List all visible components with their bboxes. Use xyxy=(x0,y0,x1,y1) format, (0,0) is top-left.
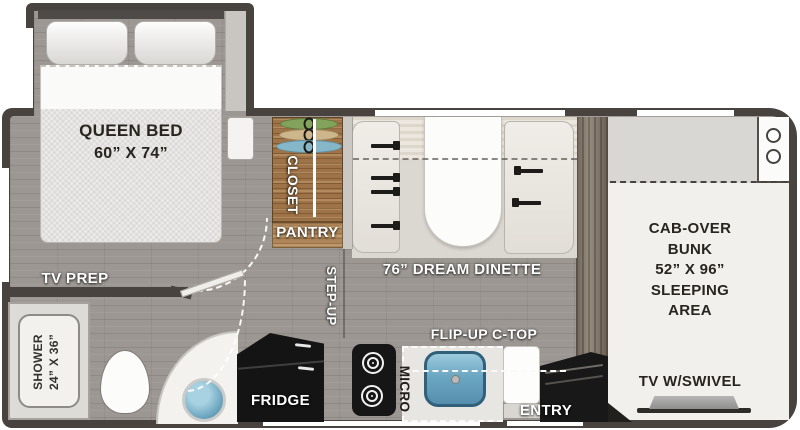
window-slideout-left xyxy=(26,28,33,108)
tv-swivel-label: TV W/SWIVEL xyxy=(617,373,763,390)
cupholder-icon xyxy=(766,149,781,164)
stove-burner-icon xyxy=(362,352,384,374)
seat-belt-icon xyxy=(514,201,541,205)
nightstand xyxy=(227,117,254,160)
fridge-label: FRIDGE xyxy=(237,392,324,409)
cab-over-bunk-label: CAB-OVER BUNK 52” X 96” SLEEPING AREA xyxy=(617,219,763,322)
seat-belt-icon xyxy=(371,190,398,194)
window-top-cab xyxy=(637,110,734,116)
slideout-cabinet-strip xyxy=(225,11,246,111)
bathroom-wall xyxy=(2,287,188,297)
bunk-label-line3: 52” X 96” xyxy=(655,261,724,278)
entry-label: ENTRY xyxy=(510,402,582,419)
cupholder-icon xyxy=(766,128,781,143)
seat-belt-icon xyxy=(371,144,398,148)
dinette-table xyxy=(424,117,502,247)
dinette-dashed-line xyxy=(353,158,577,160)
tv-prep-label: TV PREP xyxy=(30,270,120,287)
flip-up-label: FLIP-UP C-TOP xyxy=(398,326,570,342)
stove-burner-icon xyxy=(361,385,383,407)
pillow-left-icon xyxy=(46,21,128,65)
counter-dashed-line xyxy=(403,370,566,372)
dinette-bench-right xyxy=(504,121,574,254)
shower-label-line1: SHOWER xyxy=(31,334,45,390)
pillow-right-icon xyxy=(134,21,216,65)
headboard xyxy=(38,10,224,19)
window-top-dinette xyxy=(375,110,565,116)
queen-bed-label: QUEEN BED 60” X 74” xyxy=(43,120,219,165)
shower-label-line2: 24” X 36” xyxy=(47,334,61,390)
window-left-wall xyxy=(2,168,9,282)
bunk-label-line4: SLEEPING xyxy=(651,282,729,299)
bunk-dashed-line xyxy=(610,181,787,183)
bunk-label-line1: CAB-OVER xyxy=(649,220,731,237)
flip-up-counter xyxy=(503,346,540,404)
pantry-label: PANTRY xyxy=(270,224,345,241)
bunk-label-line5: AREA xyxy=(668,302,712,319)
seat-belt-icon xyxy=(371,176,398,180)
closet-rod xyxy=(313,119,316,217)
seat-belt-icon xyxy=(371,224,398,228)
kitchen-sink-drain xyxy=(451,375,460,384)
micro-label: MICRO xyxy=(396,355,412,423)
bed-sheet xyxy=(40,65,222,109)
tv-icon xyxy=(649,396,739,409)
closet-label: CLOSET xyxy=(285,150,301,220)
queen-bed-label-line2: 60” X 74” xyxy=(94,145,168,162)
step-up-label: STEP-UP xyxy=(323,262,339,330)
seat-belt-icon xyxy=(516,169,543,173)
rv-floorplan: QUEEN BED 60” X 74” TV PREP SHOWER 24” X… xyxy=(0,0,800,430)
bunk-label-line2: BUNK xyxy=(668,241,713,258)
shower-label: SHOWER 24” X 36” xyxy=(30,307,64,417)
queen-bed-label-line1: QUEEN BED xyxy=(79,121,183,140)
dinette-label: 76” DREAM DINETTE xyxy=(362,261,562,278)
